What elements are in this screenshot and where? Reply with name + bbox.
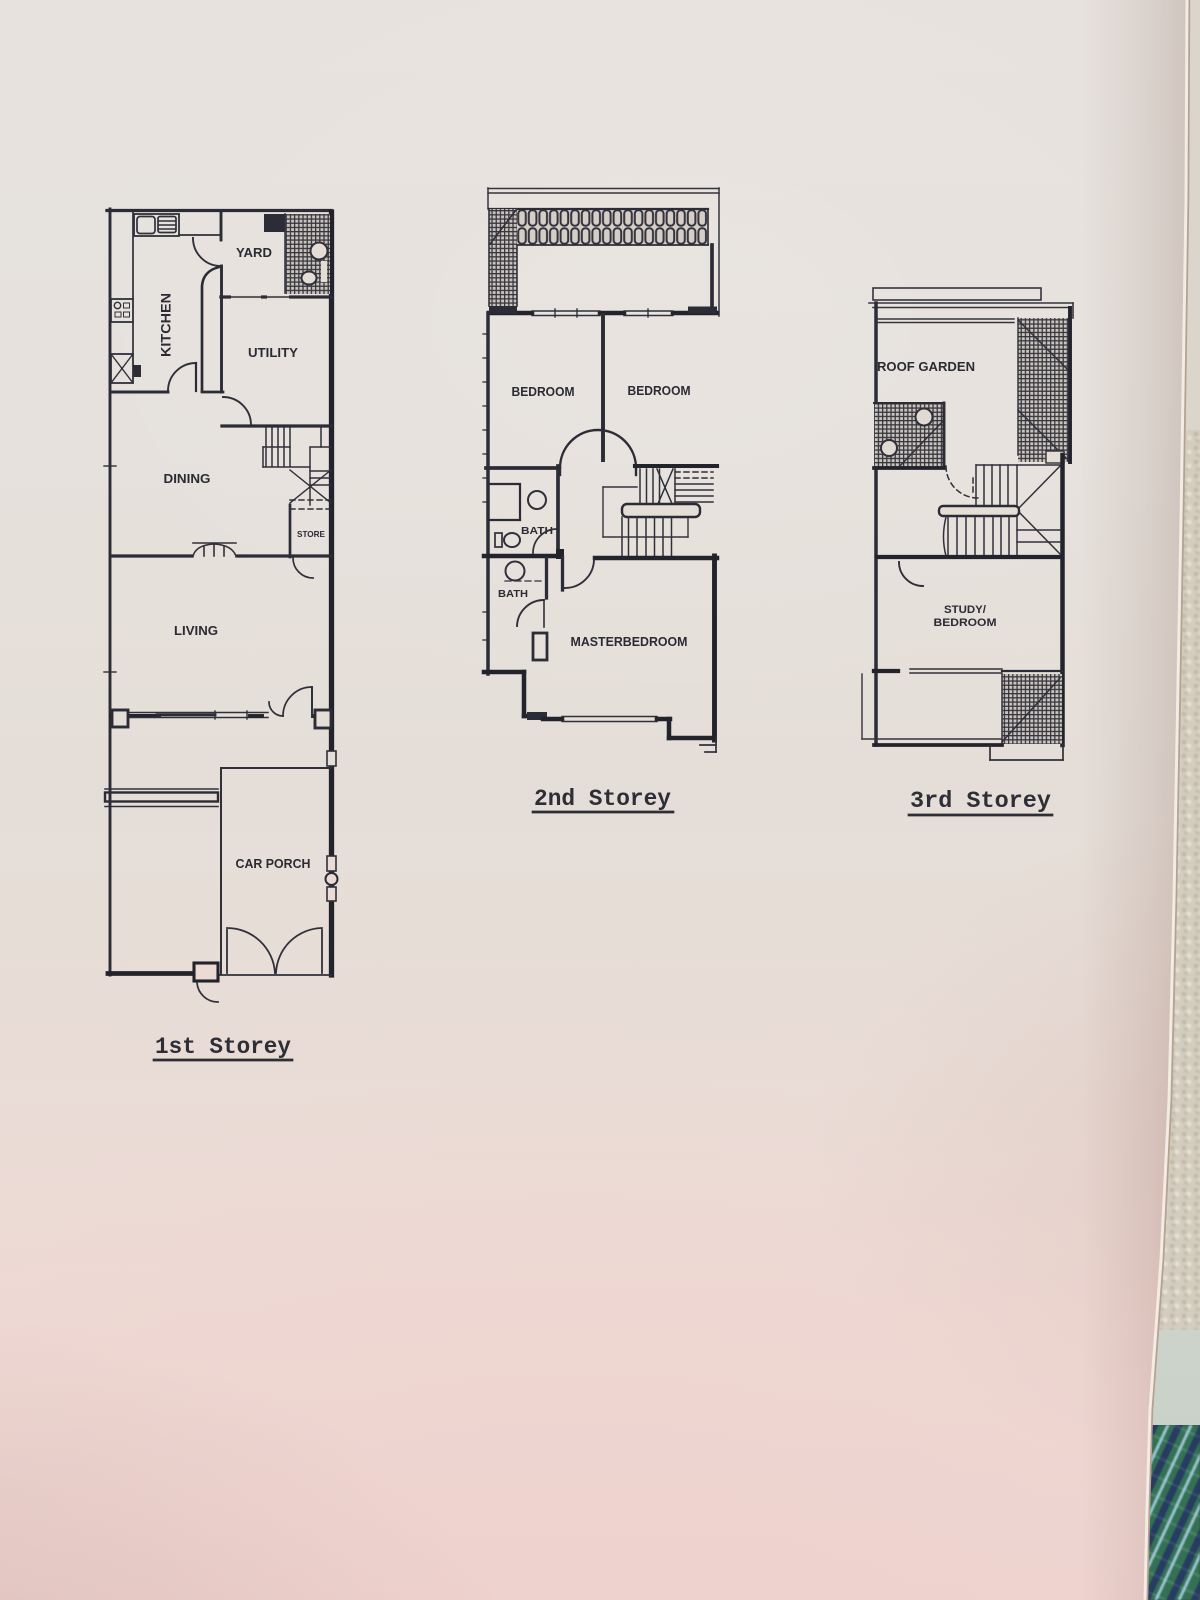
svg-text:3rd Storey: 3rd Storey [910, 788, 1051, 814]
svg-text:YARD: YARD [236, 245, 272, 260]
svg-text:DINING: DINING [164, 471, 211, 486]
svg-text:BEDROOM: BEDROOM [512, 384, 575, 399]
svg-text:1st Storey: 1st Storey [155, 1034, 291, 1060]
svg-text:ROOF GARDEN: ROOF GARDEN [877, 360, 975, 374]
svg-text:BATH: BATH [498, 588, 528, 600]
svg-text:2nd Storey: 2nd Storey [534, 786, 671, 812]
svg-text:KITCHEN: KITCHEN [159, 293, 174, 357]
svg-text:LIVING: LIVING [174, 624, 218, 638]
svg-text:MASTERBEDROOM: MASTERBEDROOM [571, 634, 688, 649]
svg-text:BEDROOM: BEDROOM [934, 617, 997, 629]
svg-text:CAR PORCH: CAR PORCH [236, 856, 311, 871]
svg-text:UTILITY: UTILITY [248, 345, 298, 360]
svg-text:STORE: STORE [297, 529, 325, 539]
svg-text:STUDY/: STUDY/ [944, 604, 986, 616]
svg-text:BEDROOM: BEDROOM [628, 383, 691, 398]
